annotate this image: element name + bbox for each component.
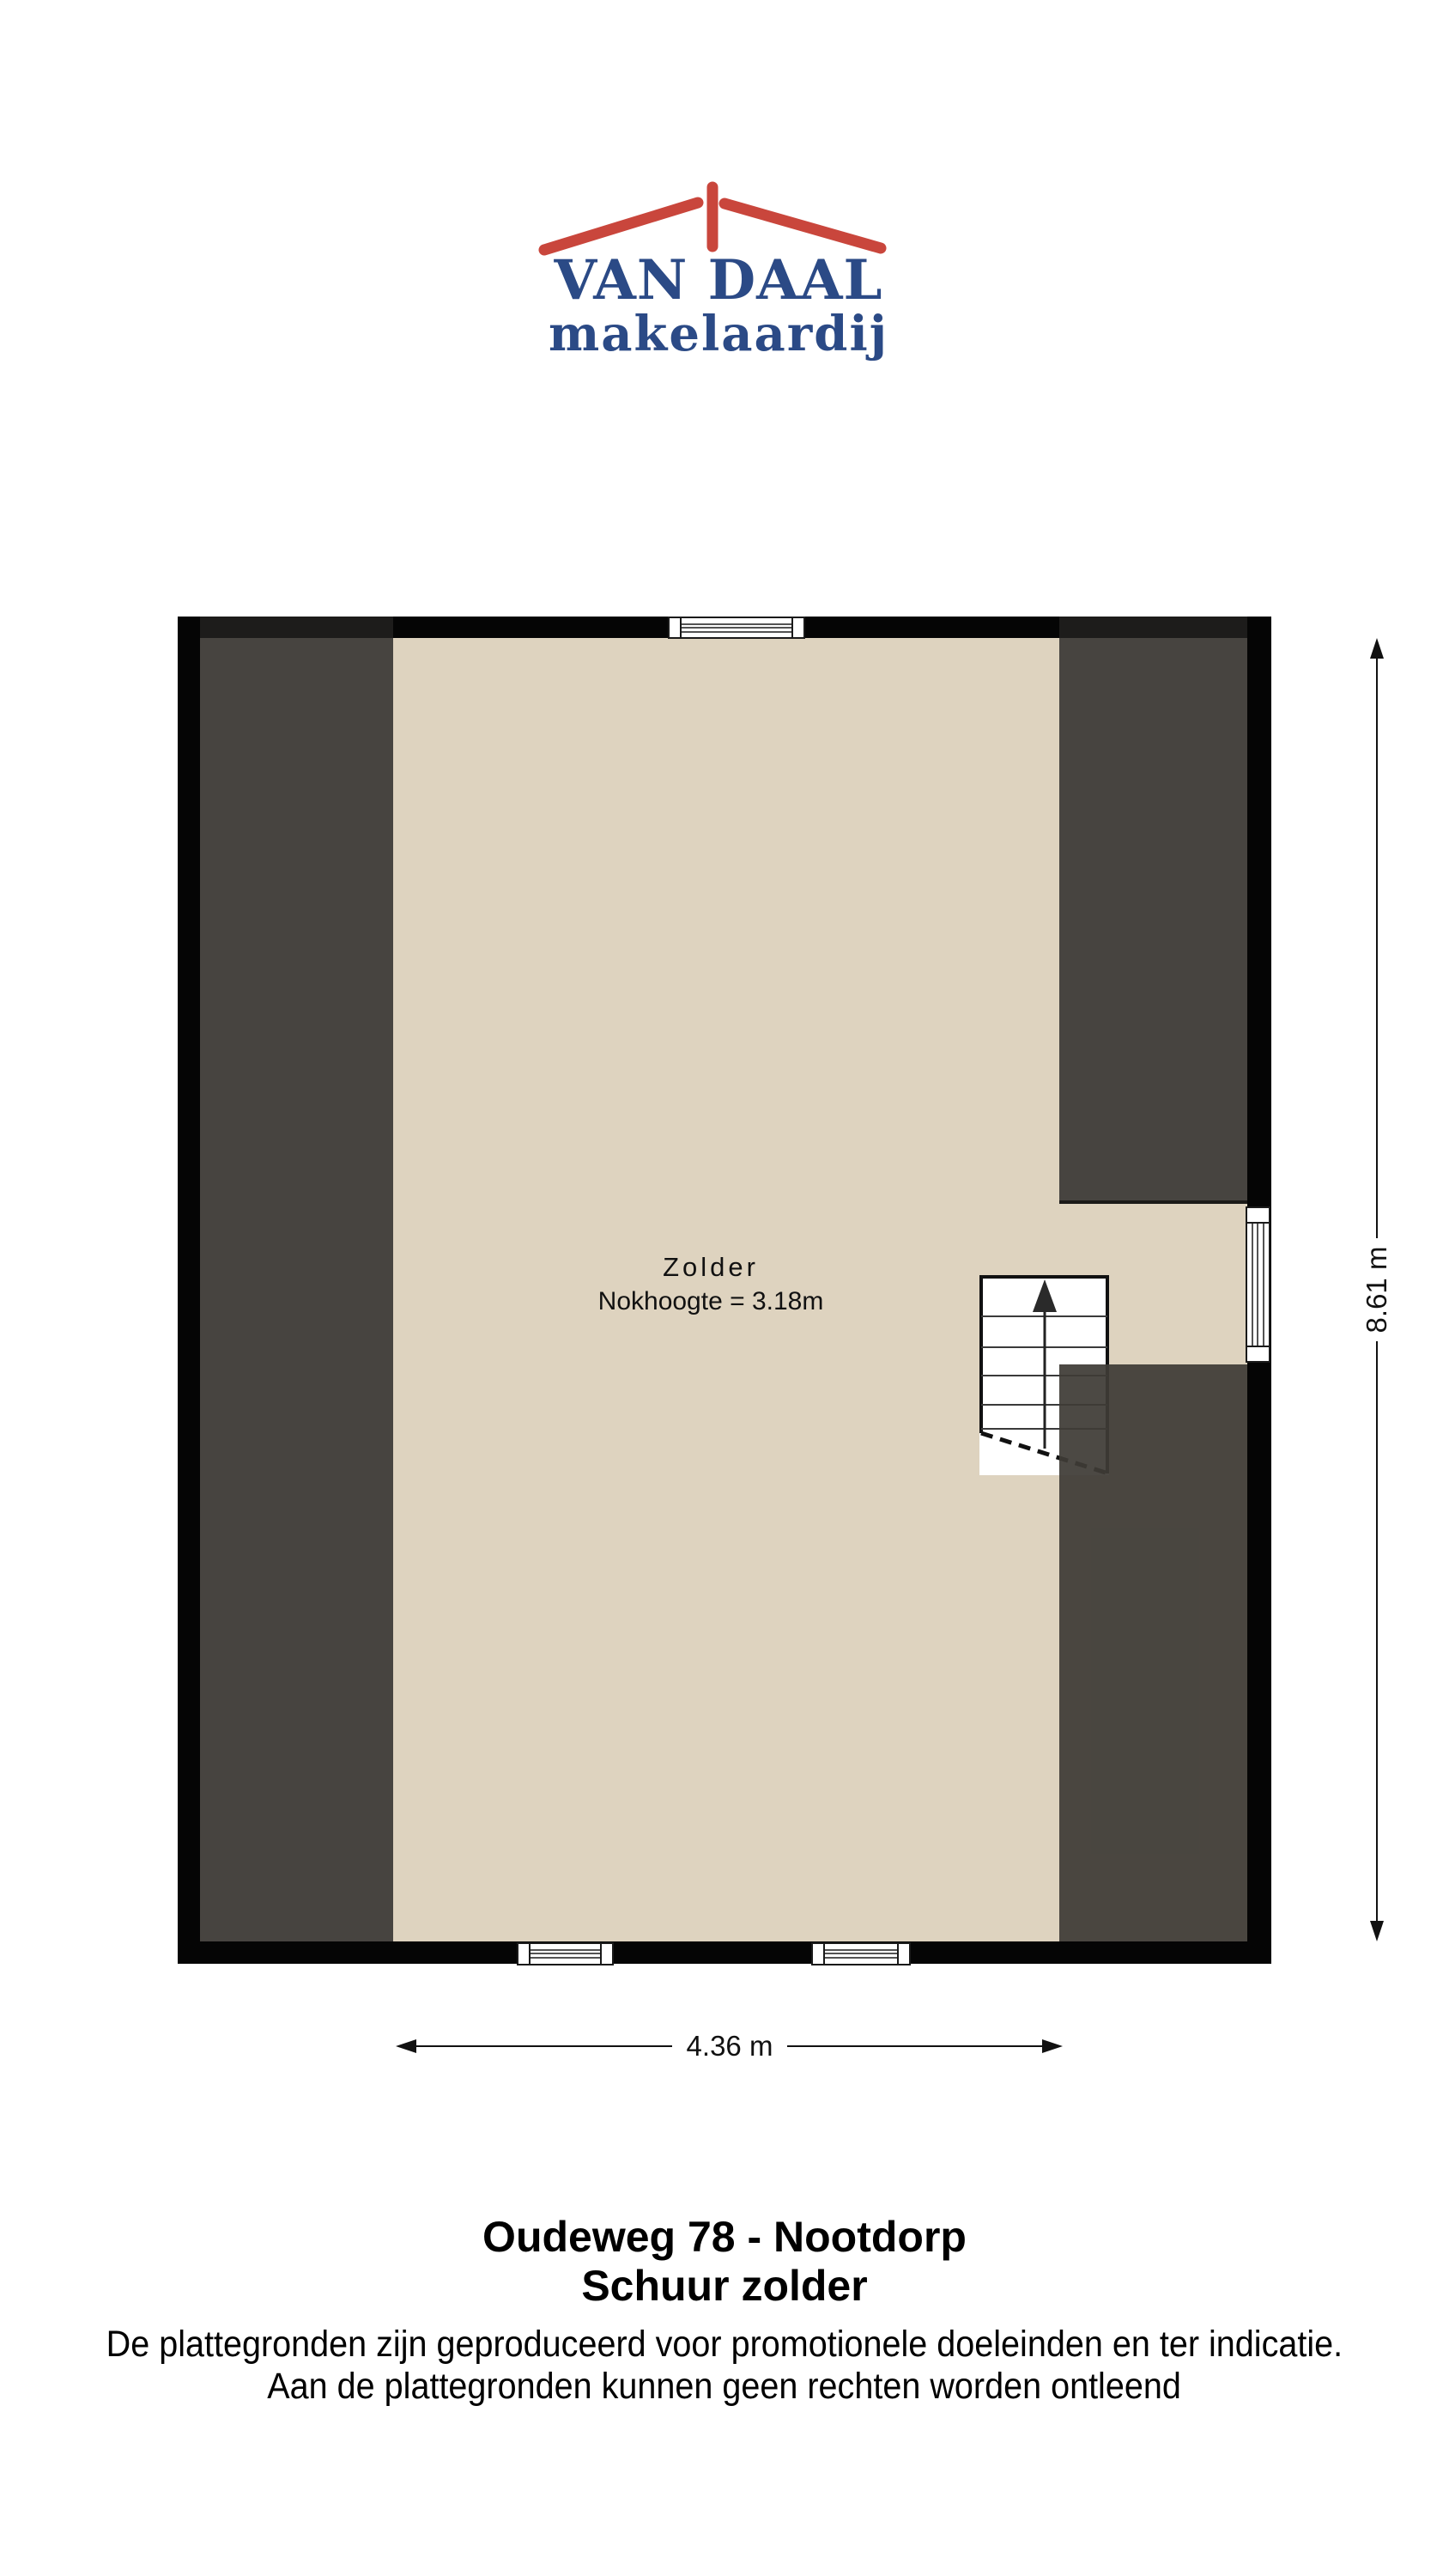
logo-title: VAN DAAL [0, 253, 1437, 308]
disclaimer-line-1: De plattegronden zijn geproduceerd voor … [0, 2324, 1449, 2366]
room-ridge-height-note: Nokhoogte = 3.18m [539, 1287, 882, 1315]
caption-address: Oudeweg 78 - Nootdorp [0, 2213, 1449, 2262]
disclaimer-line-1-text: De plattegronden zijn geproduceerd voor … [106, 2324, 1343, 2366]
caption-floor-name: Schuur zolder [0, 2262, 1449, 2311]
disclaimer-line-2-text: Aan de plattegronden kunnen geen rechten… [268, 2366, 1182, 2408]
room-label: Zolder [539, 1253, 882, 1282]
disclaimer-line-2: Aan de plattegronden kunnen geen rechten… [0, 2366, 1449, 2408]
dimension-vertical-value: 8.61 m [1361, 1247, 1393, 1334]
floorplan-page: { "logo": { "title": "VAN DAAL", "subtit… [0, 0, 1449, 2576]
logo-subtitle: makelaardij [0, 310, 1437, 358]
dimension-horizontal-value: 4.36 m [687, 2030, 773, 2063]
logo-roof-icon [544, 187, 881, 250]
